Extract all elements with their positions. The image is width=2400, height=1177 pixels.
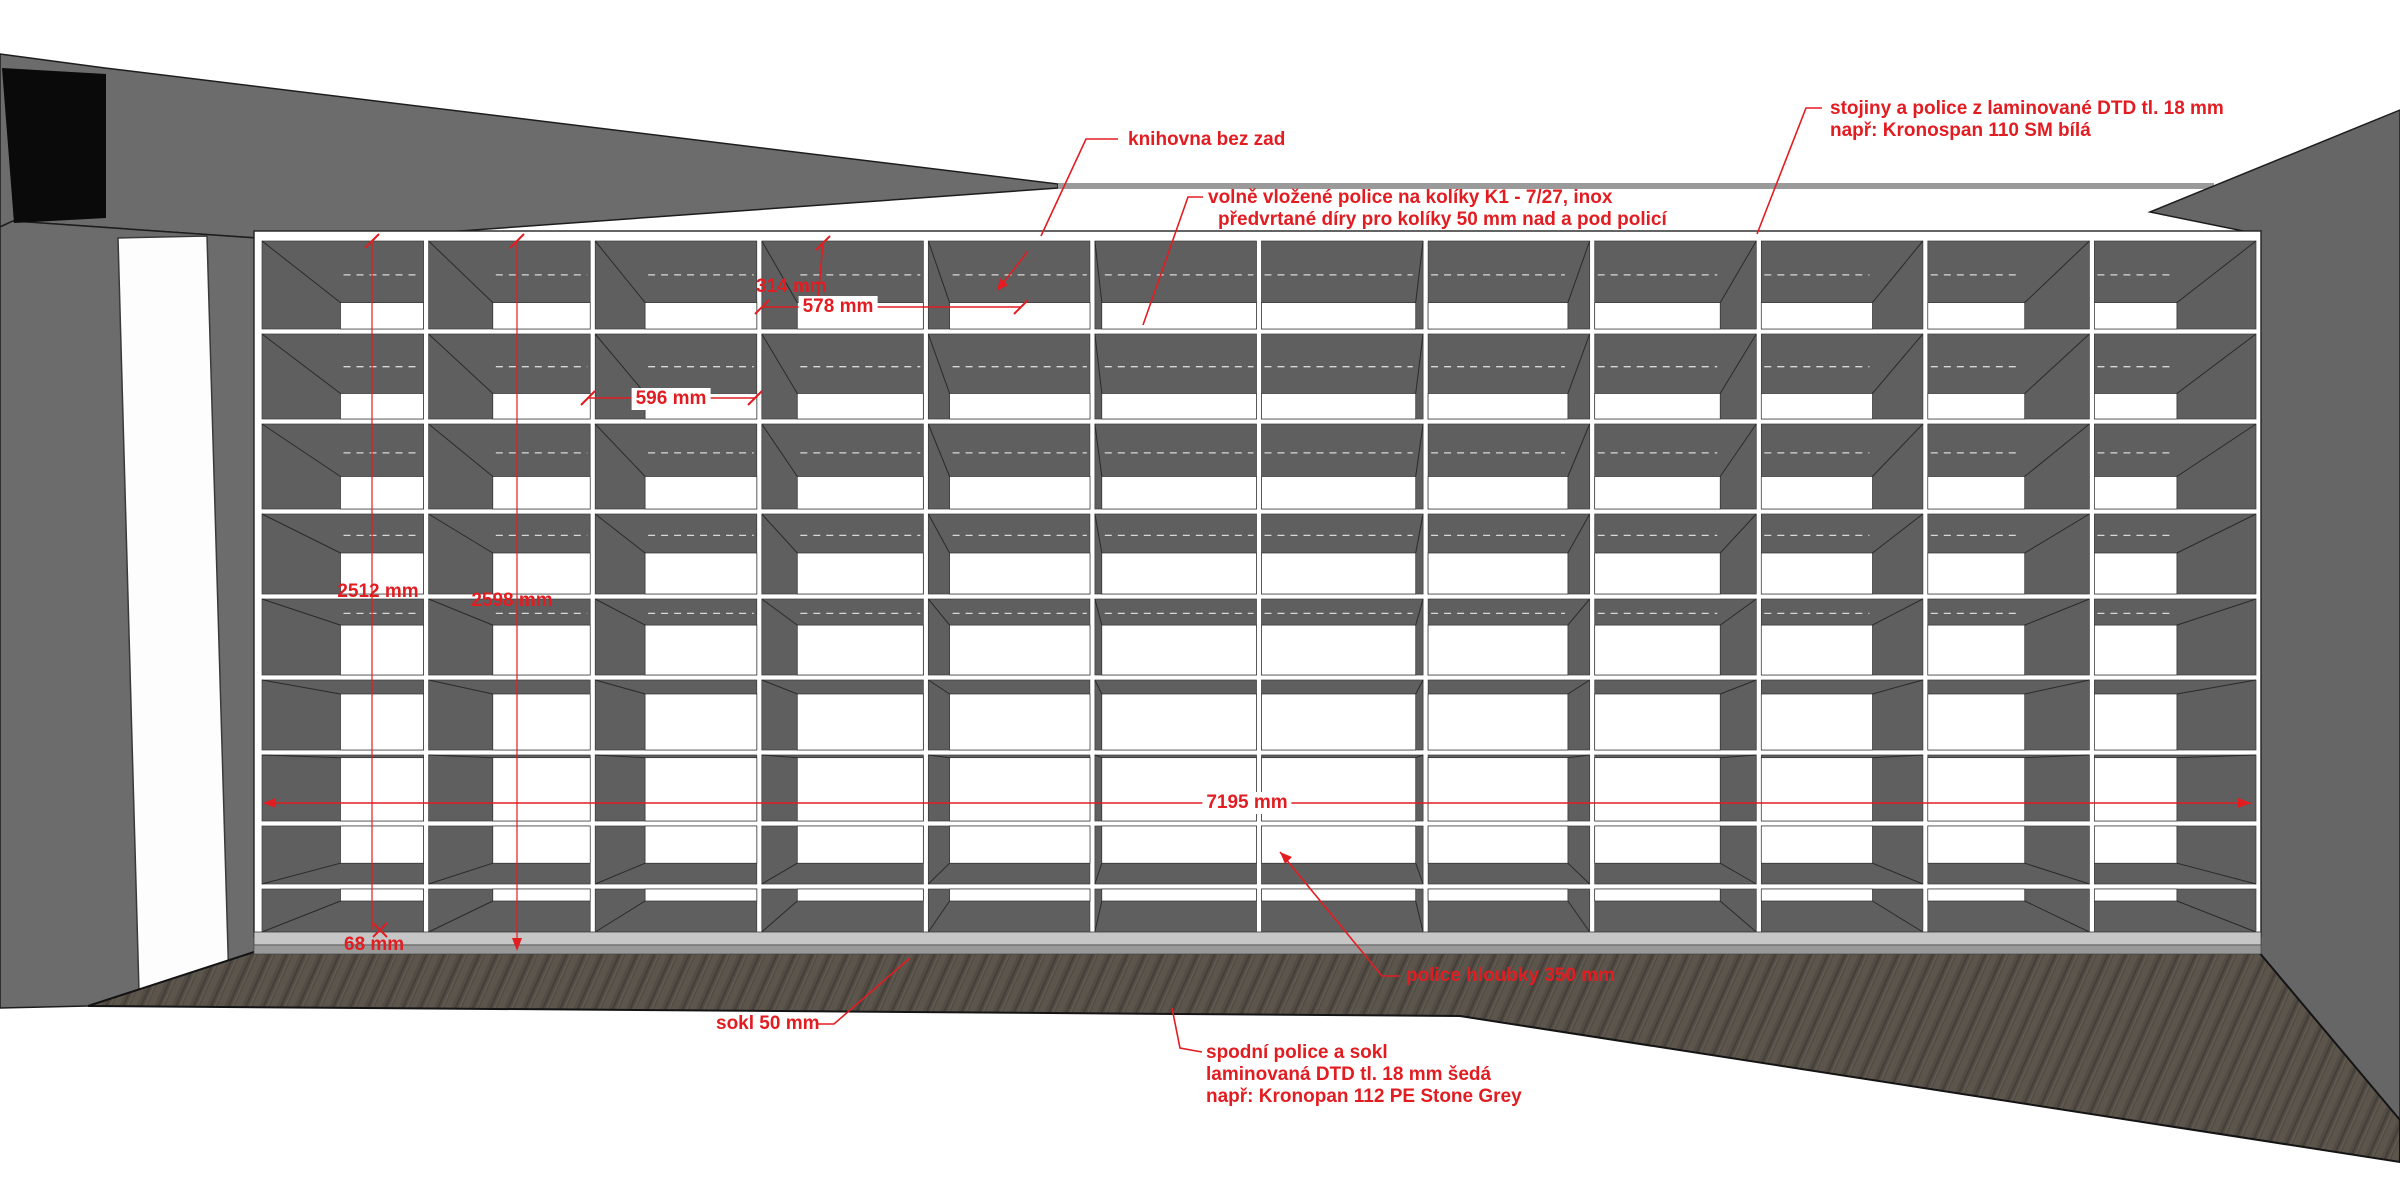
- cell-opening: [2094, 694, 2177, 750]
- cell-opening: [1262, 553, 1416, 594]
- dim-578: 578 mm: [799, 296, 878, 318]
- label-line: např: Kronopan 112 PE Stone Grey: [1206, 1086, 1522, 1108]
- cell-opening: [797, 758, 923, 821]
- cell-opening: [645, 303, 757, 329]
- cell-opening: [2094, 758, 2177, 821]
- cell-opening: [341, 477, 424, 510]
- cell-opening: [950, 477, 1090, 510]
- label-sokl: sokl 50 mm: [716, 1013, 820, 1035]
- cell-opening: [1761, 758, 1872, 821]
- cell-opening: [1928, 394, 2025, 420]
- cell-opening: [1761, 826, 1872, 863]
- cell-opening: [1595, 303, 1721, 329]
- cell-opening: [493, 694, 590, 750]
- leader-stojiny: [1757, 108, 1822, 234]
- cell-opening: [950, 826, 1090, 863]
- cell-opening: [1761, 394, 1872, 420]
- cell-opening: [950, 694, 1090, 750]
- cell-opening: [1928, 826, 2025, 863]
- cell-opening: [493, 889, 590, 901]
- cell-opening: [1761, 694, 1872, 750]
- cell-opening: [1262, 889, 1416, 901]
- cell-opening: [341, 826, 424, 863]
- cell-opening: [950, 758, 1090, 821]
- cell-opening: [341, 625, 424, 675]
- cell-opening: [1262, 694, 1416, 750]
- cell-opening: [1761, 303, 1872, 329]
- cell-opening: [341, 694, 424, 750]
- cell-opening: [1102, 889, 1257, 901]
- cell-opening: [1102, 477, 1257, 510]
- cell-opening: [645, 625, 757, 675]
- cell-opening: [1595, 694, 1721, 750]
- cell-opening: [1928, 553, 2025, 594]
- label-line: laminovaná DTD tl. 18 mm šedá: [1206, 1064, 1522, 1086]
- cell-opening: [797, 625, 923, 675]
- cell-opening: [1102, 303, 1257, 329]
- cell-opening: [493, 826, 590, 863]
- dim-2598: 2598 mm: [471, 590, 552, 612]
- cell-opening: [1102, 826, 1257, 863]
- cell-opening: [645, 553, 757, 594]
- dim-596: 596 mm: [632, 388, 711, 410]
- cell-opening: [2094, 826, 2177, 863]
- cell-opening: [2094, 889, 2177, 901]
- cell-opening: [645, 477, 757, 510]
- label-line: spodní police a sokl: [1206, 1042, 1522, 1064]
- cell-opening: [1262, 303, 1416, 329]
- cell-opening: [950, 889, 1090, 901]
- cell-opening: [2094, 553, 2177, 594]
- cell-opening: [797, 694, 923, 750]
- cell-opening: [1428, 694, 1568, 750]
- label-police-hloubky: police hloubky 350 mm: [1406, 965, 1615, 987]
- cell-opening: [950, 625, 1090, 675]
- cell-opening: [1428, 889, 1568, 901]
- cell-opening: [1928, 303, 2025, 329]
- label-line: předvrtané díry pro kolíky 50 mm nad a p…: [1218, 209, 1667, 231]
- dim-2512: 2512 mm: [337, 581, 418, 603]
- cell-opening: [2094, 477, 2177, 510]
- cell-opening: [1428, 826, 1568, 863]
- cell-opening: [1928, 477, 2025, 510]
- cell-opening: [2094, 394, 2177, 420]
- cell-opening: [1595, 889, 1721, 901]
- cell-opening: [493, 553, 590, 594]
- cell-opening: [1428, 477, 1568, 510]
- dim-68: 68 mm: [344, 934, 404, 956]
- cell-opening: [1595, 625, 1721, 675]
- cell-opening: [1595, 394, 1721, 420]
- cell-opening: [1928, 694, 2025, 750]
- cell-opening: [1761, 889, 1872, 901]
- cell-opening: [1595, 758, 1721, 821]
- cell-opening: [341, 394, 424, 420]
- label-knihovna-bez-zad: knihovna bez zad: [1128, 129, 1285, 151]
- cell-opening: [1761, 625, 1872, 675]
- label-stojiny-police: stojiny a police z laminované DTD tl. 18…: [1830, 98, 2224, 142]
- left-wall: [0, 54, 1058, 238]
- cell-opening: [1262, 394, 1416, 420]
- cell-opening: [493, 625, 590, 675]
- cell-opening: [797, 394, 923, 420]
- cell-opening: [797, 477, 923, 510]
- cell-opening: [1928, 758, 2025, 821]
- cell-opening: [1262, 625, 1416, 675]
- label-spodni-police: spodní police a sokl laminovaná DTD tl. …: [1206, 1042, 1522, 1108]
- cell-opening: [645, 758, 757, 821]
- cell-opening: [645, 889, 757, 901]
- dim-7195: 7195 mm: [1202, 792, 1291, 814]
- cell-opening: [797, 889, 923, 901]
- cell-opening: [1428, 625, 1568, 675]
- cell-opening: [950, 553, 1090, 594]
- cell-opening: [1928, 889, 2025, 901]
- cell-opening: [493, 758, 590, 821]
- cell-opening: [645, 694, 757, 750]
- cell-opening: [645, 826, 757, 863]
- cell-opening: [797, 553, 923, 594]
- label-line: volně vložené police na kolíky K1 - 7/27…: [1208, 187, 1667, 209]
- cell-opening: [493, 394, 590, 420]
- cell-opening: [1102, 394, 1257, 420]
- cell-opening: [1428, 394, 1568, 420]
- cell-opening: [1428, 553, 1568, 594]
- cell-opening: [2094, 625, 2177, 675]
- cell-opening: [1102, 553, 1257, 594]
- label-line: např: Kronospan 110 SM bílá: [1830, 120, 2224, 142]
- cell-opening: [1595, 826, 1721, 863]
- cell-opening: [341, 889, 424, 901]
- cell-opening: [493, 303, 590, 329]
- cell-opening: [1928, 625, 2025, 675]
- cell-opening: [950, 394, 1090, 420]
- cell-opening: [1761, 477, 1872, 510]
- label-line: stojiny a police z laminované DTD tl. 18…: [1830, 98, 2224, 120]
- drawing-canvas: knihovna bez zad stojiny a police z lami…: [0, 0, 2400, 1177]
- cell-opening: [341, 758, 424, 821]
- cell-opening: [1595, 477, 1721, 510]
- cell-opening: [341, 303, 424, 329]
- cell-opening: [1761, 553, 1872, 594]
- cell-opening: [1102, 694, 1257, 750]
- label-vlozene-police: volně vložené police na kolíky K1 - 7/27…: [1208, 187, 1667, 231]
- cell-opening: [2094, 303, 2177, 329]
- cell-opening: [493, 477, 590, 510]
- cell-opening: [1102, 625, 1257, 675]
- cell-opening: [1595, 553, 1721, 594]
- cell-opening: [1428, 758, 1568, 821]
- bottom-shelf-stone-grey: [254, 932, 2261, 945]
- cell-opening: [797, 826, 923, 863]
- sokl-band: [254, 945, 2261, 954]
- dim-314: 314 mm: [756, 276, 827, 298]
- cell-opening: [1428, 303, 1568, 329]
- black-opening: [2, 68, 106, 223]
- cell-opening: [1262, 477, 1416, 510]
